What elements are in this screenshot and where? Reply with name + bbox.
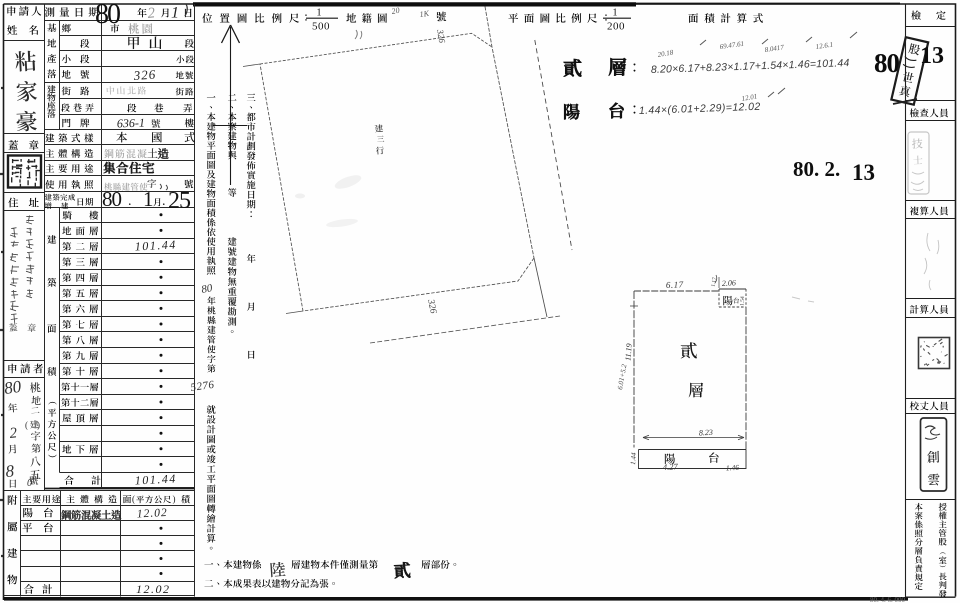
svg-text:6.17: 6.17	[666, 279, 684, 290]
svg-text:1.54: 1.54	[740, 296, 747, 306]
svg-text:.: .	[162, 194, 166, 209]
svg-text:1: 1	[612, 8, 617, 19]
svg-text:200: 200	[607, 21, 625, 33]
svg-text:11.19: 11.19	[624, 343, 634, 361]
svg-text:1: 1	[171, 5, 179, 22]
svg-text:1.44: 1.44	[629, 452, 638, 465]
svg-text:80: 80	[102, 187, 122, 211]
svg-text:25: 25	[168, 188, 191, 214]
svg-text:0: 0	[27, 478, 32, 489]
svg-text:80. 2.: 80. 2.	[793, 157, 840, 181]
svg-text:101.44: 101.44	[134, 471, 177, 487]
svg-text:8.23: 8.23	[699, 428, 713, 438]
svg-text:80: 80	[874, 48, 900, 78]
svg-text:12.02: 12.02	[137, 507, 168, 521]
svg-text:1: 1	[143, 187, 154, 211]
svg-text:4.27: 4.27	[663, 461, 679, 472]
svg-text:20: 20	[391, 6, 400, 16]
svg-text:636-1: 636-1	[117, 116, 145, 131]
svg-text:12.02: 12.02	[136, 582, 171, 596]
svg-text:1: 1	[316, 8, 321, 19]
svg-text:500: 500	[312, 21, 330, 33]
svg-text:326: 326	[132, 66, 156, 83]
svg-text:101.44: 101.44	[134, 237, 177, 253]
svg-text:1.46: 1.46	[726, 463, 740, 473]
svg-text:(: (	[132, 494, 135, 504]
svg-text:13: 13	[852, 160, 875, 185]
svg-text:): )	[173, 494, 176, 504]
svg-text:80: 80	[3, 377, 23, 398]
svg-text:13: 13	[920, 43, 944, 69]
svg-text:80. 4. 6. 000: 80. 4. 6. 000	[870, 596, 906, 603]
svg-text:2.06: 2.06	[722, 278, 736, 288]
svg-text:): )	[37, 420, 40, 430]
svg-text:.: .	[128, 194, 132, 209]
svg-text:(: (	[25, 420, 28, 430]
